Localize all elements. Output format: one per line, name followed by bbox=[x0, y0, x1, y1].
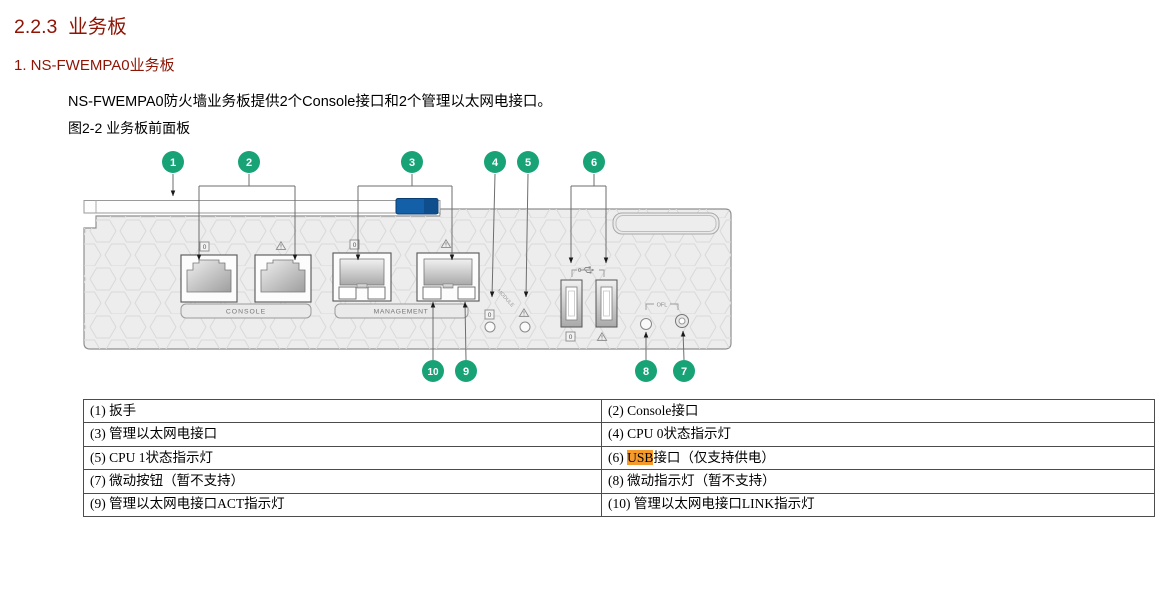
table-cell-right: (6) USB接口（仅支持供电） bbox=[602, 446, 1155, 469]
cell-text: (7) 微动按钮（暂不支持） bbox=[90, 473, 244, 488]
table-row: (5) CPU 1状态指示灯(6) USB接口（仅支持供电） bbox=[84, 446, 1155, 469]
table-cell-right: (8) 微动指示灯（暂不支持） bbox=[602, 470, 1155, 493]
body-text: NS-FWEMPA0防火墙业务板提供2个Console接口和2个管理以太网电接口… bbox=[68, 90, 552, 111]
console-label-plate: CONSOLE bbox=[181, 304, 311, 318]
callout-3: 3 bbox=[401, 151, 423, 173]
right-grip-inset bbox=[613, 213, 719, 234]
management-label-plate: MANAGEMENT bbox=[335, 304, 468, 318]
table-row: (3) 管理以太网电接口(4) CPU 0状态指示灯 bbox=[84, 423, 1155, 446]
port-number-label bbox=[200, 242, 209, 251]
cell-text: (6) bbox=[608, 450, 627, 465]
cell-text: (9) 管理以太网电接口ACT指示灯 bbox=[90, 496, 285, 511]
cpu0-led bbox=[485, 322, 495, 332]
callout-6: 6 bbox=[583, 151, 605, 173]
callout-4: 4 bbox=[484, 151, 506, 173]
port-number-label bbox=[485, 310, 494, 319]
svg-text:1: 1 bbox=[170, 157, 176, 169]
callout-5: 5 bbox=[517, 151, 539, 173]
cell-text: (3) 管理以太网电接口 bbox=[90, 426, 217, 441]
svg-text:2: 2 bbox=[246, 157, 252, 169]
table-cell-left: (9) 管理以太网电接口ACT指示灯 bbox=[84, 493, 602, 516]
legend-table-body: (1) 扳手(2) Console接口(3) 管理以太网电接口(4) CPU 0… bbox=[84, 400, 1155, 517]
svg-text:8: 8 bbox=[643, 366, 649, 378]
console-port-0 bbox=[181, 255, 237, 302]
ofl-label: OFL bbox=[657, 303, 668, 309]
svg-text:10: 10 bbox=[427, 367, 439, 378]
table-cell-right: (2) Console接口 bbox=[602, 400, 1155, 423]
subsection-heading: 1. NS-FWEMPA0业务板 bbox=[14, 54, 175, 75]
mgmt-act-led bbox=[423, 287, 441, 299]
page-root: { "page": { "section_heading": "2.2.3 业务… bbox=[0, 0, 1163, 589]
table-cell-left: (3) 管理以太网电接口 bbox=[84, 423, 602, 446]
mgmt0-led-right bbox=[368, 287, 385, 299]
figure-caption: 图2-2 业务板前面板 bbox=[68, 118, 190, 138]
callout-10: 10 bbox=[422, 360, 444, 382]
table-cell-left: (5) CPU 1状态指示灯 bbox=[84, 446, 602, 469]
cpu1-led bbox=[520, 322, 530, 332]
management-port-0 bbox=[333, 253, 391, 301]
panel-handle bbox=[84, 199, 440, 215]
cell-text: (10) 管理以太网电接口LINK指示灯 bbox=[608, 496, 815, 511]
svg-text:CONSOLE: CONSOLE bbox=[226, 309, 266, 316]
mgmt-link-led bbox=[458, 287, 475, 299]
usb-port-1 bbox=[596, 280, 617, 327]
micro-led bbox=[641, 319, 652, 330]
cell-text: (4) CPU 0状态指示灯 bbox=[608, 426, 731, 441]
management-port-1 bbox=[417, 253, 479, 301]
table-cell-right: (4) CPU 0状态指示灯 bbox=[602, 423, 1155, 446]
cell-text: (1) 扳手 bbox=[90, 403, 136, 418]
svg-text:6: 6 bbox=[591, 157, 597, 169]
section-heading: 2.2.3 业务板 bbox=[14, 10, 127, 39]
table-row: (9) 管理以太网电接口ACT指示灯(10) 管理以太网电接口LINK指示灯 bbox=[84, 493, 1155, 516]
svg-text:MANAGEMENT: MANAGEMENT bbox=[374, 309, 429, 316]
panel-figure: 0 CONSOLE bbox=[75, 145, 765, 393]
cell-text: 接口（仅支持供电） bbox=[653, 450, 775, 465]
console-port-1 bbox=[255, 255, 311, 302]
svg-text:7: 7 bbox=[681, 366, 687, 378]
port-number-label bbox=[566, 332, 575, 341]
cell-text: (5) CPU 1状态指示灯 bbox=[90, 450, 213, 465]
callout-8: 8 bbox=[635, 360, 657, 382]
callout-2: 2 bbox=[238, 151, 260, 173]
table-cell-left: (1) 扳手 bbox=[84, 400, 602, 423]
micro-button-center bbox=[679, 318, 685, 324]
table-row: (1) 扳手(2) Console接口 bbox=[84, 400, 1155, 423]
callout-7: 7 bbox=[673, 360, 695, 382]
cell-text: (2) Console接口 bbox=[608, 403, 698, 418]
svg-text:5: 5 bbox=[525, 157, 531, 169]
panel-figure-svg: 0 CONSOLE bbox=[75, 145, 765, 393]
table-cell-left: (7) 微动按钮（暂不支持） bbox=[84, 470, 602, 493]
usb-port-0 bbox=[561, 280, 582, 327]
highlighted-text: USB bbox=[627, 450, 653, 465]
legend-table: (1) 扳手(2) Console接口(3) 管理以太网电接口(4) CPU 0… bbox=[83, 399, 1155, 517]
callout-9: 9 bbox=[455, 360, 477, 382]
svg-text:3: 3 bbox=[409, 157, 415, 169]
callout-1: 1 bbox=[162, 151, 184, 173]
cell-text: (8) 微动指示灯（暂不支持） bbox=[608, 473, 776, 488]
svg-text:9: 9 bbox=[463, 366, 469, 378]
table-cell-right: (10) 管理以太网电接口LINK指示灯 bbox=[602, 493, 1155, 516]
table-row: (7) 微动按钮（暂不支持）(8) 微动指示灯（暂不支持） bbox=[84, 470, 1155, 493]
mgmt0-led-left bbox=[339, 287, 356, 299]
svg-text:4: 4 bbox=[492, 157, 499, 169]
